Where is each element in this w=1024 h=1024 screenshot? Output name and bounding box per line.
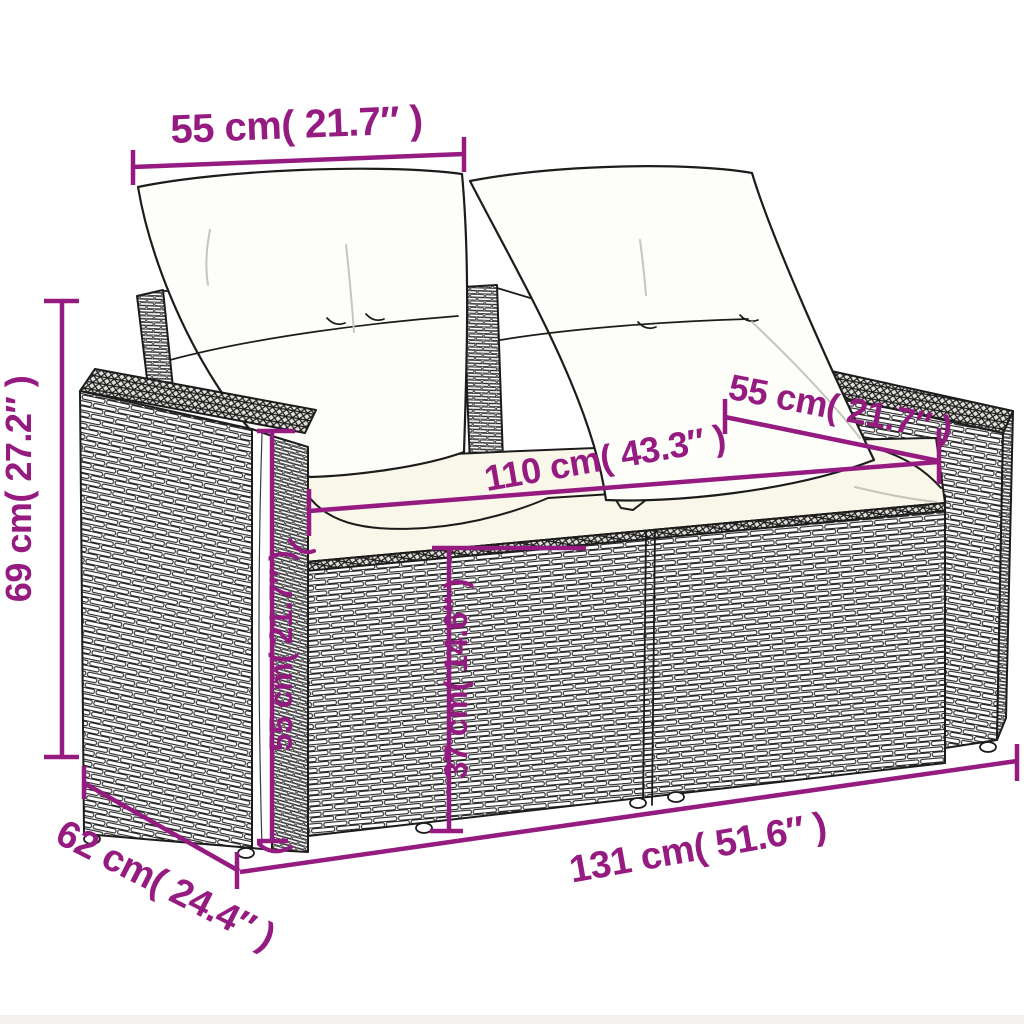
dimension-overall-height: 69 cm( 27.2″ ) — [0, 301, 79, 757]
sofa-foot — [238, 848, 254, 858]
dimension-label-back-cushion-width: 55 cm( 21.7″ ) — [170, 98, 424, 152]
dimension-label-overall-height: 69 cm( 27.2″ ) — [0, 376, 39, 602]
sofa-foot — [980, 742, 996, 752]
left-armrest-side-face — [80, 391, 252, 848]
sofa-illustration — [80, 166, 1013, 858]
sofa-dimension-illustration: 55 cm( 21.7″ ) 69 cm( 27.2″ ) 55 cm( 21.… — [0, 0, 1024, 1024]
sofa-foot — [668, 792, 684, 802]
dimension-label-frame-height: 55 cm( 21.7″ ) — [263, 551, 299, 751]
back-post-middle — [463, 285, 503, 464]
product-dimension-diagram: 55 cm( 21.7″ ) 69 cm( 27.2″ ) 55 cm( 21.… — [0, 0, 1024, 1024]
sofa-foot — [416, 823, 432, 833]
dimension-line — [44, 301, 79, 757]
sofa-foot — [630, 798, 646, 808]
dimension-label-seat-height: 37 cm( 14.6″ ) — [438, 579, 474, 779]
bottom-edge-strip — [0, 1015, 1024, 1024]
